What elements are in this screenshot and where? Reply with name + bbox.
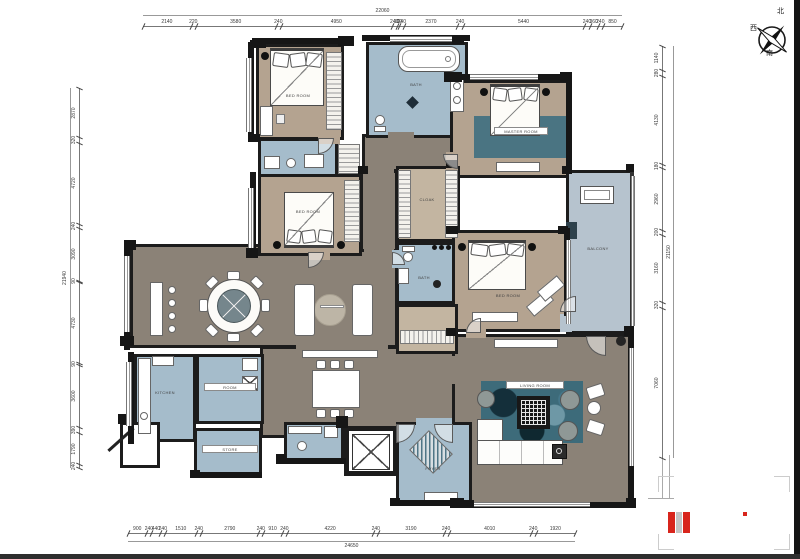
- counter: [288, 426, 322, 434]
- dim-value: 4730: [71, 317, 77, 328]
- rug-round: [314, 294, 346, 326]
- room-label: KITCHEN: [140, 390, 190, 395]
- bottom-edge-bar: [0, 554, 800, 559]
- kitchen-sink: [140, 412, 148, 420]
- cushion-line: [521, 441, 522, 464]
- watermark-logo-bar-right: [683, 512, 690, 533]
- window: [474, 502, 590, 507]
- window: [390, 36, 452, 42]
- frame-bracket: [658, 549, 674, 550]
- column: [246, 248, 258, 258]
- floor-plan: 北 西 南 BED ROOMBED ROOMMASTER ROOMBED ROO…: [0, 0, 800, 559]
- compass-label-north: 北: [777, 6, 784, 16]
- dim-value: 3090: [71, 249, 77, 260]
- washer: [264, 156, 280, 169]
- room-label: MASTER ROOM: [494, 127, 548, 135]
- column: [446, 226, 458, 234]
- dim-line-right: [662, 46, 663, 458]
- room-label: ROOM: [204, 383, 256, 391]
- dim-value: 1790: [71, 443, 77, 454]
- window: [470, 74, 538, 80]
- dim-value: 90: [71, 279, 77, 285]
- window: [629, 348, 634, 466]
- cushion-line: [499, 441, 500, 464]
- floor-drain: [433, 280, 441, 288]
- shower-dot: [432, 245, 437, 250]
- dim-value: 910: [268, 526, 276, 532]
- dim-value: 850: [608, 19, 616, 25]
- dim-total-value: 21150: [666, 245, 672, 259]
- dim-value: 2870: [71, 107, 77, 118]
- desk: [260, 106, 273, 136]
- dim-value: 240: [442, 526, 450, 532]
- dresser: [496, 162, 540, 172]
- chair: [316, 409, 326, 418]
- chair: [261, 299, 270, 312]
- column: [250, 40, 266, 48]
- dim-value: 280: [654, 69, 660, 77]
- dim-value: 3190: [405, 526, 416, 532]
- chair: [330, 360, 340, 369]
- kitchen-counter: [152, 356, 174, 366]
- toilet: [375, 115, 385, 125]
- dim-value: 220: [189, 19, 197, 25]
- desk-chair: [276, 114, 285, 124]
- stool: [168, 312, 176, 320]
- bed-3: [468, 240, 526, 290]
- dim-value: 240: [372, 526, 380, 532]
- dim-total-line-right: [673, 46, 674, 458]
- room-hall-mid: [360, 170, 398, 252]
- compass: 北 西 南: [744, 14, 796, 70]
- dim-value: 1510: [175, 526, 186, 532]
- room-label: BALCONY: [576, 246, 620, 251]
- window: [124, 256, 130, 332]
- dim-value: 180: [654, 161, 660, 169]
- opening: [366, 166, 394, 176]
- dim-value: 240: [529, 526, 537, 532]
- column: [626, 164, 634, 172]
- dining-table-round-glass: [217, 289, 251, 323]
- nightstand: [261, 52, 269, 60]
- wall: [190, 472, 262, 478]
- chair: [227, 333, 240, 342]
- wardrobe: [326, 52, 342, 130]
- frame-bracket: [774, 549, 790, 550]
- dim-value: 240: [398, 19, 406, 25]
- window: [248, 188, 254, 248]
- chair: [199, 299, 208, 312]
- dim-value: 390: [71, 426, 77, 434]
- sofa-main: [477, 440, 563, 465]
- dim-value: 4720: [71, 178, 77, 189]
- column: [336, 416, 348, 428]
- room-label: BATH: [398, 82, 434, 87]
- dim-line-left: [79, 88, 80, 468]
- dim-value: 320: [654, 301, 660, 309]
- window: [126, 362, 132, 426]
- watermark-logo-bar-mid: [676, 512, 682, 533]
- bed-fold-line: [285, 193, 333, 245]
- basin: [453, 96, 461, 104]
- column: [120, 336, 134, 346]
- column: [124, 240, 136, 250]
- shower-dot: [446, 245, 451, 250]
- right-edge-bar: [794, 0, 800, 559]
- column: [452, 36, 464, 44]
- dim-value: 240: [456, 19, 464, 25]
- window: [631, 176, 635, 326]
- frame-bracket: [789, 534, 790, 550]
- opening: [364, 246, 394, 256]
- basin: [453, 82, 461, 90]
- dim-value: 200: [654, 228, 660, 236]
- dim-value: 5440: [518, 19, 529, 25]
- room-label: CLOAK: [406, 197, 448, 202]
- side-table: [587, 401, 601, 415]
- tv-console: [494, 339, 558, 348]
- room-label: LIVING ROOM: [506, 381, 564, 389]
- watermark-logo-bar-left: [668, 512, 675, 533]
- dim-value: 2960: [654, 193, 660, 204]
- room-label: BED ROOM: [270, 93, 326, 98]
- bed-2: [284, 192, 334, 248]
- column: [626, 498, 636, 506]
- sofa: [294, 284, 315, 336]
- dim-total-value: 22060: [376, 8, 390, 14]
- nightstand: [458, 243, 466, 251]
- kitchen-counter: [138, 358, 151, 434]
- column: [276, 454, 286, 464]
- column: [624, 326, 634, 336]
- dim-total-value: 21940: [62, 271, 68, 285]
- column: [190, 470, 200, 478]
- dim-value: 240: [257, 526, 265, 532]
- dim-tick: [621, 23, 625, 30]
- tub-drain: [445, 56, 451, 62]
- room-label: STORE: [202, 445, 258, 453]
- opening: [448, 356, 458, 384]
- dim-value: 2790: [224, 526, 235, 532]
- nightstand: [273, 241, 281, 249]
- nightstand: [528, 243, 536, 251]
- toilet: [286, 158, 296, 168]
- stool: [168, 325, 176, 333]
- room-label: FOYER: [412, 466, 454, 471]
- dim-total-line-top: [143, 15, 622, 16]
- opening: [388, 132, 414, 142]
- armchair: [560, 390, 580, 410]
- room-label: [320, 305, 344, 308]
- frame-bracket: [658, 476, 659, 492]
- dim-value: 240: [274, 19, 282, 25]
- sofa-corner: [477, 419, 503, 442]
- dim-value: 2140: [161, 19, 172, 25]
- dim-value: 90: [71, 361, 77, 367]
- dim-total-value: 24650: [345, 543, 359, 549]
- watermark-dot: [743, 512, 747, 516]
- closet-small: [338, 144, 360, 174]
- plant: [616, 336, 626, 346]
- dim-value: 3600: [71, 390, 77, 401]
- column: [338, 36, 354, 46]
- dining-table: [312, 370, 360, 408]
- appliance: [242, 358, 258, 371]
- console: [302, 350, 378, 358]
- dim-value: 2370: [425, 19, 436, 25]
- room-label: BED ROOM: [486, 293, 530, 298]
- dim-value: 240: [71, 221, 77, 229]
- shaft-inner-x: [352, 434, 390, 470]
- dim-value: 1920: [550, 526, 561, 532]
- dim-tick: [574, 530, 578, 537]
- dim-value: 240: [195, 526, 203, 532]
- room-label: BATH: [404, 275, 444, 280]
- wall: [566, 74, 572, 174]
- column: [390, 498, 400, 506]
- dim-value: 240: [596, 19, 604, 25]
- chair: [344, 360, 354, 369]
- sideboard: [150, 282, 163, 336]
- dim-value: 4010: [484, 526, 495, 532]
- nightstand: [480, 88, 488, 96]
- dim-value: 7060: [654, 378, 660, 389]
- ext-line: [669, 455, 670, 499]
- frame-bracket: [774, 476, 790, 477]
- dim-value: 1140: [654, 53, 660, 64]
- dim-value: 320: [71, 136, 77, 144]
- column: [358, 166, 368, 174]
- wall: [282, 458, 346, 464]
- coffee-table: [517, 396, 550, 429]
- nightstand: [542, 88, 550, 96]
- frame-bracket: [658, 476, 674, 477]
- frame-bracket: [658, 534, 659, 550]
- dim-value: 240: [280, 526, 288, 532]
- shower-dot: [439, 245, 444, 250]
- dim-value: 900: [133, 526, 141, 532]
- window: [246, 58, 252, 132]
- wardrobe: [344, 180, 360, 242]
- chair: [227, 271, 240, 280]
- stool: [168, 286, 176, 294]
- dim-value: 240: [71, 462, 77, 470]
- sofa: [352, 284, 373, 336]
- column: [444, 72, 462, 82]
- dim-value: 4130: [654, 114, 660, 125]
- wall: [252, 38, 350, 44]
- column: [450, 498, 464, 506]
- column: [250, 134, 260, 142]
- armchair: [558, 421, 578, 441]
- compass-label-west: 西: [750, 23, 757, 33]
- compass-label-south: 南: [766, 48, 773, 58]
- toilet: [297, 441, 307, 451]
- bed-fold-line: [469, 243, 525, 289]
- chair: [316, 360, 326, 369]
- column: [562, 166, 572, 174]
- dim-value: 3160: [654, 262, 660, 273]
- dim-value: 4220: [325, 526, 336, 532]
- stool: [168, 299, 176, 307]
- balcony-bench-inner: [584, 190, 610, 200]
- column: [560, 72, 572, 82]
- room-label: BED ROOM: [282, 209, 334, 214]
- dim-value: 3580: [230, 19, 241, 25]
- dim-line-top: [143, 26, 622, 27]
- side-table-glyph: [556, 448, 562, 454]
- dim-value: 240: [159, 526, 167, 532]
- wardrobe: [398, 170, 411, 238]
- ext-line: [662, 455, 663, 499]
- dim-total-line-bottom: [128, 541, 575, 542]
- column: [558, 226, 568, 234]
- toilet-tank: [374, 126, 386, 132]
- ext-line: [648, 498, 674, 499]
- dim-tick: [76, 467, 83, 471]
- nightstand: [337, 241, 345, 249]
- frame-bracket: [789, 476, 790, 492]
- cushion-line: [543, 441, 544, 464]
- dim-value: 4950: [331, 19, 342, 25]
- armchair: [477, 390, 495, 408]
- vanity: [304, 154, 324, 168]
- column: [446, 328, 456, 336]
